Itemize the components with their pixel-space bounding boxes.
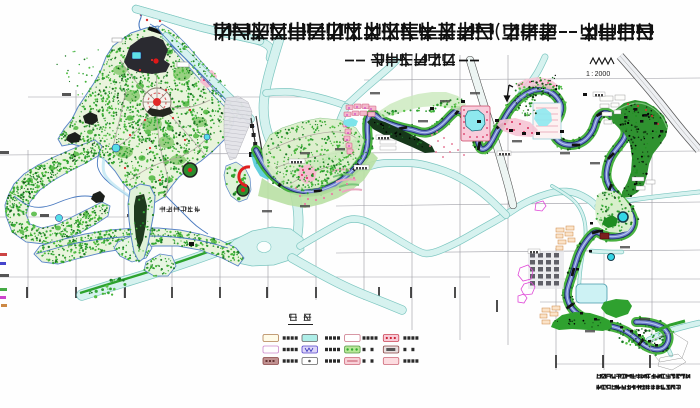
svg-text:1 : 2000: 1 : 2000 bbox=[586, 71, 610, 78]
